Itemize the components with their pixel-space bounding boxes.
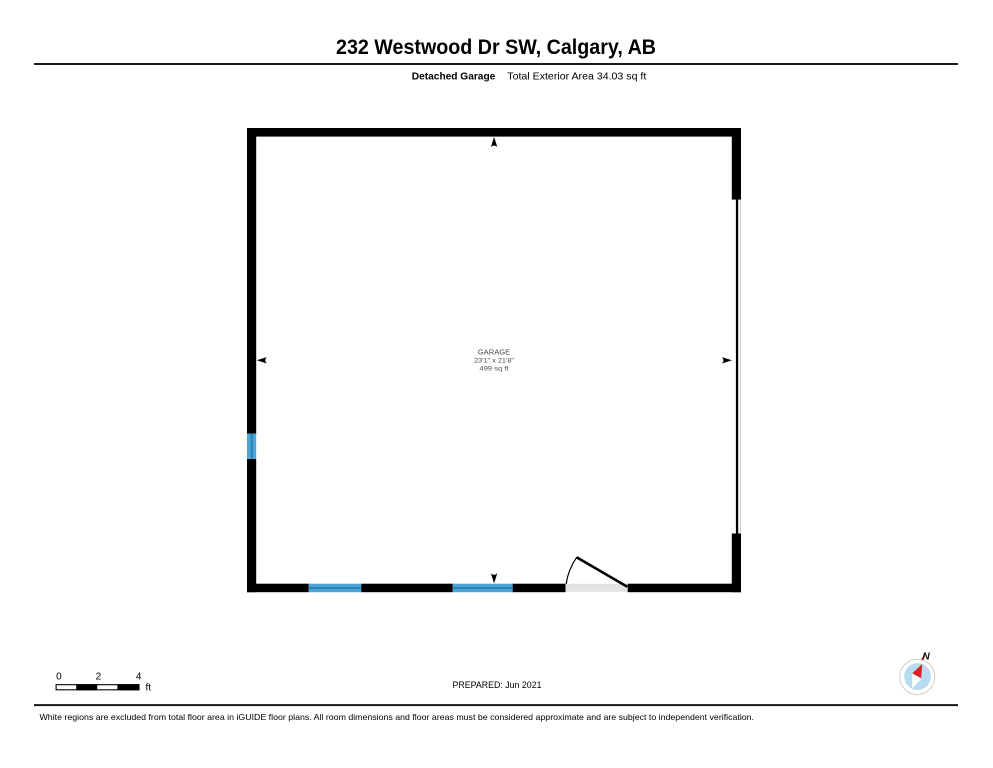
svg-text:232 Westwood Dr SW, Calgary, A: 232 Westwood Dr SW, Calgary, AB xyxy=(336,36,656,59)
svg-text:GARAGE: GARAGE xyxy=(478,348,511,357)
svg-text:White regions are excluded fro: White regions are excluded from total fl… xyxy=(40,712,755,722)
svg-text:4: 4 xyxy=(136,671,142,682)
svg-text:ft: ft xyxy=(146,682,152,693)
svg-text:0: 0 xyxy=(56,671,62,682)
svg-text:2: 2 xyxy=(96,671,102,682)
svg-text:499 sq ft: 499 sq ft xyxy=(480,366,509,373)
svg-text:N: N xyxy=(922,652,930,663)
svg-text:Detached Garage: Detached Garage xyxy=(412,72,496,83)
svg-text:Total Exterior Area 34.03 sq f: Total Exterior Area 34.03 sq ft xyxy=(507,72,646,83)
svg-text:23'1" x 21'8": 23'1" x 21'8" xyxy=(474,358,515,365)
svg-text:PREPARED: Jun 2021: PREPARED: Jun 2021 xyxy=(453,680,542,691)
